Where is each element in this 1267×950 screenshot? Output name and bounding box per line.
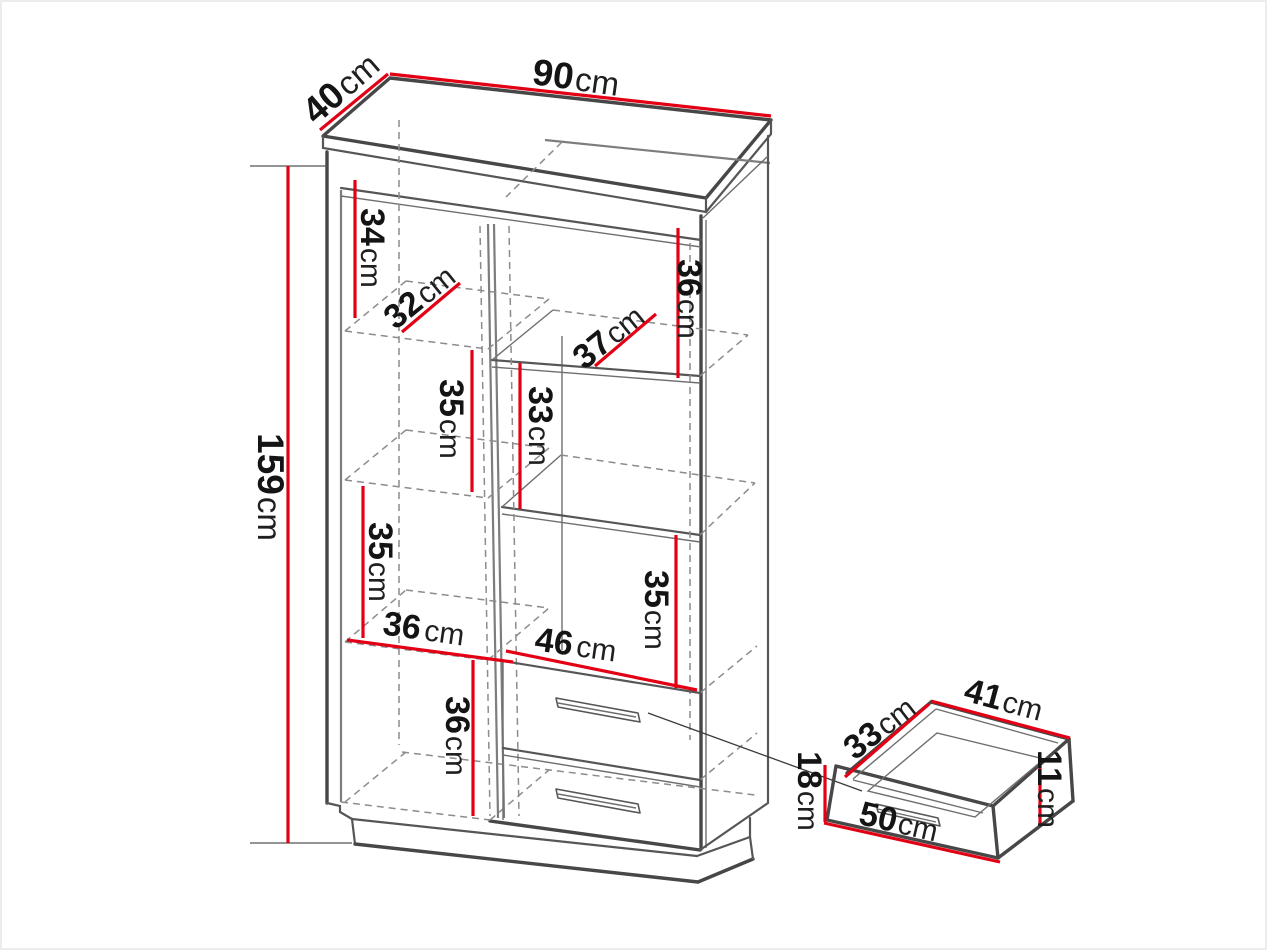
shelf-front-edge bbox=[502, 507, 700, 535]
hidden-top-corner bbox=[506, 142, 562, 197]
hidden-drawer-side bbox=[700, 733, 757, 780]
drawer-leader-line bbox=[648, 713, 862, 791]
shelf-edge bbox=[561, 455, 755, 483]
plinth-left-edge bbox=[352, 819, 355, 844]
dim-label-drawer-front-width: 50cm bbox=[856, 794, 942, 849]
drawer-divider-edge bbox=[503, 748, 700, 780]
furniture-dimension-diagram: 90cm 40cm 159cm 34cm 32cm 36cm 37cm 35cm… bbox=[0, 0, 1267, 950]
dim-label-left-lower-height: 35cm bbox=[361, 522, 399, 602]
plinth-left-step bbox=[327, 803, 352, 819]
shelf-front-edge-2 bbox=[502, 514, 700, 542]
dim-line-drawer-width bbox=[931, 701, 1070, 738]
shelf-edge bbox=[345, 331, 488, 349]
back-top-edge bbox=[545, 140, 770, 163]
cabinet-plinth bbox=[327, 803, 753, 882]
shelf-top-left-edge bbox=[492, 310, 553, 360]
diagram-canvas: 90cm 40cm 159cm 34cm 32cm 36cm 37cm 35cm… bbox=[0, 0, 1267, 950]
dim-label-left-top-shelf-depth: 32cm bbox=[377, 257, 463, 337]
dim-label-drawer-side-height: 11cm bbox=[1030, 750, 1068, 828]
shelf-edge bbox=[406, 590, 549, 608]
hidden-drawer-side bbox=[700, 646, 757, 693]
plinth-bottom-right-edge bbox=[698, 859, 753, 882]
dim-label-right-lower-height: 35cm bbox=[637, 570, 675, 650]
hidden-bottom-side bbox=[345, 752, 406, 802]
shelf-edge bbox=[345, 430, 406, 480]
right-side-top-edge bbox=[703, 156, 768, 218]
dim-label-right-shelf-width: 46cm bbox=[533, 620, 619, 669]
shelf-edge bbox=[345, 480, 488, 498]
dim-label-center-height: 33cm bbox=[521, 386, 559, 466]
hidden-bottom-front bbox=[341, 802, 490, 820]
shelf-edge bbox=[700, 335, 748, 376]
dim-label-right-top-shelf-depth: 37cm bbox=[566, 297, 652, 377]
cabinet-carcass bbox=[327, 136, 768, 850]
dim-label-right-top-height: 36cm bbox=[670, 259, 708, 339]
cabinet-top-panel bbox=[323, 78, 771, 212]
drawer-right-back-edge bbox=[1069, 739, 1073, 801]
top-panel-top-face bbox=[323, 78, 771, 198]
hidden-partition-line bbox=[509, 226, 519, 816]
top-panel-front-edge bbox=[323, 136, 706, 212]
dim-label-height: 159cm bbox=[250, 433, 291, 541]
dim-label-left-top-height: 34cm bbox=[353, 208, 391, 288]
shelf-edge bbox=[488, 299, 549, 349]
dim-label-left-bottom-height: 36cm bbox=[438, 696, 476, 776]
inner-top-edge-2 bbox=[341, 196, 701, 247]
dim-label-drawer-front-height: 18cm bbox=[790, 751, 828, 831]
drawer-divider-edge-2 bbox=[503, 755, 700, 787]
dim-label-left-middle-height: 35cm bbox=[432, 379, 470, 459]
inner-top-edge bbox=[341, 188, 701, 240]
plinth-back-right-edge bbox=[750, 837, 753, 859]
shelf-edge bbox=[553, 310, 748, 335]
dimension-labels: 90cm 40cm 159cm 34cm 32cm 36cm 37cm 35cm… bbox=[250, 44, 1068, 850]
shelf-edge bbox=[700, 483, 755, 535]
